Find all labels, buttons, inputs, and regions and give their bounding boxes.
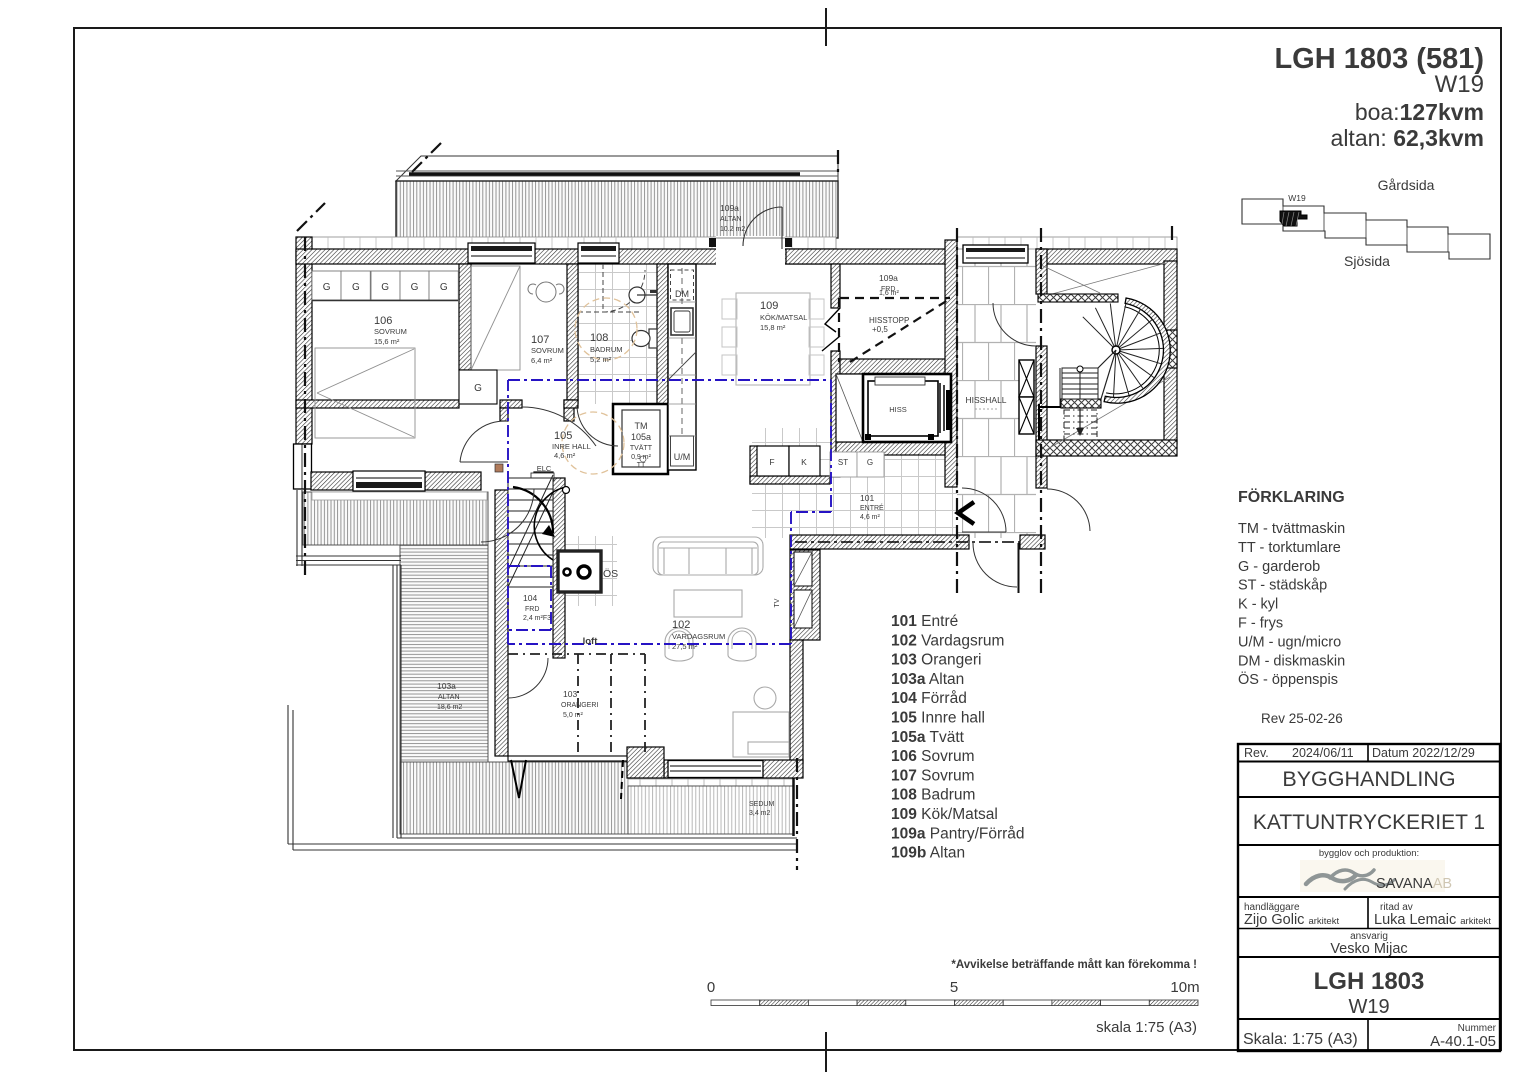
svg-text:103: 103: [563, 689, 577, 699]
svg-text:102: 102: [672, 619, 690, 631]
svg-text:SOVRUM: SOVRUM: [531, 346, 564, 355]
svg-text:SEDUM: SEDUM: [749, 801, 774, 808]
svg-text:ÖS - öppenspis: ÖS - öppenspis: [1238, 670, 1338, 688]
svg-text:Datum 2022/12/29: Datum 2022/12/29: [1372, 746, 1475, 760]
svg-text:BADRUM: BADRUM: [590, 345, 623, 354]
svg-text:103a: 103a: [437, 681, 456, 691]
svg-text:109a: 109a: [720, 203, 739, 213]
svg-text:Sjösida: Sjösida: [1344, 253, 1390, 269]
svg-text:A-40.1-05: A-40.1-05: [1430, 1033, 1496, 1050]
svg-text:G: G: [381, 282, 389, 293]
svg-text:ÖS: ÖS: [603, 568, 618, 580]
svg-text:Rev.: Rev.: [1244, 746, 1269, 760]
svg-text:Vesko Mijac: Vesko Mijac: [1330, 941, 1407, 957]
svg-text:4,6 m²: 4,6 m²: [860, 514, 881, 521]
svg-text:SAVANAAB: SAVANAAB: [1376, 876, 1452, 892]
svg-text:G - garderob: G - garderob: [1238, 559, 1320, 575]
svg-text:0,9 m²: 0,9 m²: [631, 454, 652, 461]
svg-text:G: G: [323, 282, 331, 293]
svg-text:ALTAN: ALTAN: [720, 216, 742, 223]
svg-text:ORANGERI: ORANGERI: [561, 702, 598, 709]
svg-text:109a: 109a: [879, 273, 898, 283]
svg-text:15,8 m²: 15,8 m²: [760, 323, 786, 332]
svg-text:3,4 m2: 3,4 m2: [749, 810, 771, 817]
svg-text:109b Altan: 109b Altan: [891, 845, 965, 862]
svg-text:ST: ST: [838, 458, 848, 467]
svg-text:ELC: ELC: [537, 464, 552, 473]
svg-text:TT - torktumlare: TT - torktumlare: [1238, 540, 1341, 556]
svg-text:HISSHALL: HISSHALL: [965, 395, 1006, 405]
svg-text:U/M: U/M: [674, 452, 691, 462]
svg-text:10m: 10m: [1170, 979, 1199, 996]
svg-text:ENTRÉ: ENTRÉ: [860, 503, 884, 512]
svg-text:F - frys: F - frys: [1238, 616, 1283, 632]
svg-text:skala 1:75 (A3): skala 1:75 (A3): [1096, 1019, 1197, 1036]
svg-text:0: 0: [707, 979, 715, 996]
svg-text:INRE HALL: INRE HALL: [552, 442, 591, 451]
svg-text:Gårdsida: Gårdsida: [1378, 177, 1435, 193]
svg-text:*Avvikelse beträffande mått ka: *Avvikelse beträffande mått kan förekomm…: [951, 959, 1197, 971]
svg-text:109 Kök/Matsal: 109 Kök/Matsal: [891, 806, 998, 823]
svg-text:103a Altan: 103a Altan: [891, 671, 964, 688]
svg-text:HISS: HISS: [889, 405, 907, 414]
svg-text:105a Tvätt: 105a Tvätt: [891, 729, 965, 746]
svg-text:KÖK/MATSAL: KÖK/MATSAL: [760, 313, 807, 322]
svg-text:altan: 62,3kvm: altan: 62,3kvm: [1331, 125, 1484, 151]
svg-text:4,6 m²: 4,6 m²: [554, 451, 576, 460]
svg-text:TV: TV: [774, 598, 781, 607]
svg-text:boa:127kvm: boa:127kvm: [1355, 99, 1484, 125]
svg-text:F: F: [769, 457, 774, 467]
svg-text:DM: DM: [675, 289, 689, 299]
svg-text:104: 104: [523, 593, 537, 603]
svg-text:TVÄTT: TVÄTT: [630, 444, 653, 452]
svg-text:Rev 25-02-26: Rev 25-02-26: [1261, 711, 1343, 726]
svg-text:W19: W19: [1348, 996, 1389, 1018]
svg-text:VARDAGSRUM: VARDAGSRUM: [672, 632, 725, 641]
svg-text:ALTAN: ALTAN: [438, 694, 460, 701]
svg-text:SOVRUM: SOVRUM: [374, 327, 407, 336]
svg-text:TM: TM: [635, 421, 648, 431]
svg-text:1,6 m²: 1,6 m²: [879, 290, 900, 297]
svg-text:HISSTOPP: HISSTOPP: [869, 316, 909, 325]
svg-text:101: 101: [860, 493, 874, 503]
svg-text:10.2 m2: 10.2 m2: [720, 226, 745, 233]
svg-text:2024/06/11: 2024/06/11: [1292, 746, 1354, 760]
svg-text:18,6 m2: 18,6 m2: [437, 704, 462, 711]
svg-text:106: 106: [374, 315, 392, 327]
svg-text:loft: loft: [583, 636, 599, 647]
svg-text:108: 108: [590, 332, 608, 344]
svg-text:K - kyl: K - kyl: [1238, 597, 1278, 613]
svg-text:G: G: [474, 383, 482, 394]
svg-text:G: G: [867, 458, 873, 467]
svg-text:109: 109: [760, 300, 778, 312]
svg-text:TT: TT: [637, 462, 646, 469]
svg-text:5,2 m²: 5,2 m²: [590, 355, 612, 364]
svg-text:+0,5: +0,5: [872, 325, 888, 334]
svg-text:U/M - ugn/micro: U/M - ugn/micro: [1238, 634, 1341, 650]
svg-text:K: K: [801, 457, 807, 467]
svg-text:LGH 1803: LGH 1803: [1314, 968, 1425, 995]
svg-text:KATTUNTRYCKERIET 1: KATTUNTRYCKERIET 1: [1253, 811, 1485, 834]
svg-text:107 Sovrum: 107 Sovrum: [891, 767, 975, 784]
svg-text:103 Orangeri: 103 Orangeri: [891, 652, 982, 669]
svg-text:G: G: [440, 282, 448, 293]
svg-text:W19: W19: [1288, 193, 1306, 203]
svg-text:108 Badrum: 108 Badrum: [891, 787, 975, 804]
svg-text:106 Sovrum: 106 Sovrum: [891, 748, 975, 765]
svg-text:TM - tvättmaskin: TM - tvättmaskin: [1238, 521, 1345, 537]
svg-text:105 Innre hall: 105 Innre hall: [891, 710, 985, 727]
svg-text:102 Vardagsrum: 102 Vardagsrum: [891, 632, 1004, 649]
svg-text:Skala: 1:75 (A3): Skala: 1:75 (A3): [1243, 1031, 1358, 1048]
svg-text:6,4 m²: 6,4 m²: [531, 356, 553, 365]
svg-text:2,4 m²F3: 2,4 m²F3: [523, 615, 551, 622]
svg-text:W19: W19: [1435, 71, 1484, 98]
svg-text:107: 107: [531, 334, 549, 346]
svg-text:ST - städskåp: ST - städskåp: [1238, 578, 1327, 594]
svg-text:109a Pantry/Förråd: 109a Pantry/Förråd: [891, 825, 1025, 842]
svg-text:5: 5: [950, 979, 958, 996]
svg-text:G: G: [352, 282, 360, 293]
svg-text:5,0 m²: 5,0 m²: [563, 712, 584, 719]
svg-text:G: G: [411, 282, 419, 293]
svg-text:104 Förråd: 104 Förråd: [891, 690, 967, 707]
svg-text:bygglov och produktion:: bygglov och produktion:: [1319, 848, 1419, 859]
svg-text:105: 105: [554, 430, 572, 442]
svg-text:105a: 105a: [631, 432, 651, 442]
svg-text:15,6 m²: 15,6 m²: [374, 337, 400, 346]
svg-text:101 Entré: 101 Entré: [891, 613, 958, 630]
svg-text:FRD: FRD: [525, 606, 539, 613]
svg-text:BYGGHANDLING: BYGGHANDLING: [1282, 767, 1455, 791]
svg-text:DM - diskmaskin: DM - diskmaskin: [1238, 653, 1345, 669]
svg-text:FÖRKLARING: FÖRKLARING: [1238, 487, 1345, 506]
